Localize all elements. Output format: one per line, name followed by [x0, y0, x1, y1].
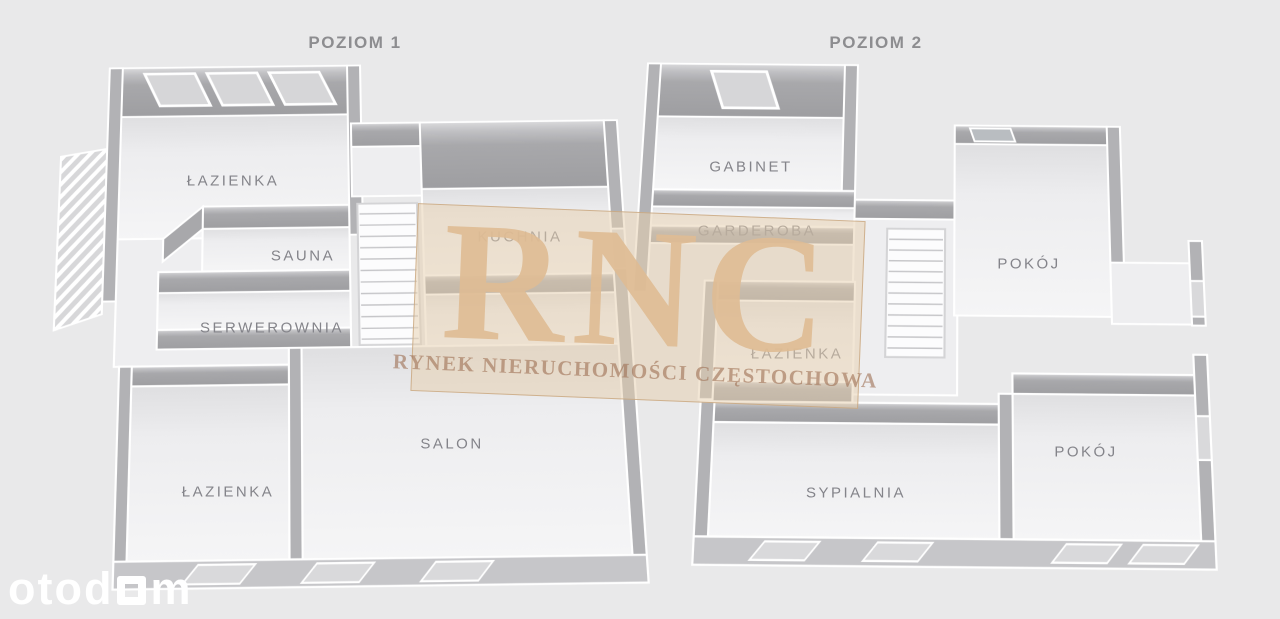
staircase [885, 229, 945, 358]
otodom-logo: otod m [8, 566, 192, 611]
window-icon [1190, 281, 1205, 317]
otodom-logo-prefix: otod [8, 566, 113, 611]
room-label-gabinet: GABINET [709, 159, 792, 176]
roof-window-icon [710, 71, 780, 108]
closet-block [351, 123, 422, 197]
room-serwerownia [157, 270, 352, 350]
front-wall [113, 555, 649, 590]
watermark: RNC RYNEK NIERUCHOMOŚCI CZĘSTOCHOWA [410, 203, 865, 409]
room-label-lazienka-bottom: ŁAZIENKA [182, 484, 275, 501]
floor-plan-image: POZIOM 1 POZIOM 2 ŁAZIENKA SAUNA SERWERO… [0, 0, 1280, 619]
room-label-salon: SALON [420, 436, 483, 453]
room-sypialnia [694, 391, 1014, 539]
front-wall [692, 536, 1216, 569]
room-label-sypialnia: SYPIALNIA [806, 485, 906, 502]
room-label-pokoj-gorny: POKÓJ [997, 256, 1060, 273]
level-1-title: POZIOM 1 [308, 33, 401, 53]
room-lazienka-bottom [113, 365, 289, 562]
staircase [357, 203, 421, 345]
window-icon [1196, 416, 1212, 460]
window-icon [970, 128, 1015, 141]
balcony-stairs [54, 149, 107, 330]
level-2-title: POZIOM 2 [829, 33, 922, 53]
room-label-sauna: SAUNA [271, 248, 335, 265]
room-label-lazienka-top: ŁAZIENKA [187, 173, 280, 190]
otodom-square-icon [117, 576, 146, 605]
watermark-logo: RNC [440, 216, 837, 361]
room-label-pokoj-dolny: POKÓJ [1054, 444, 1117, 461]
otodom-logo-suffix: m [150, 566, 192, 611]
room-label-serwerownia: SERWEROWNIA [200, 320, 344, 337]
room-pokoj-gorny [954, 125, 1206, 325]
